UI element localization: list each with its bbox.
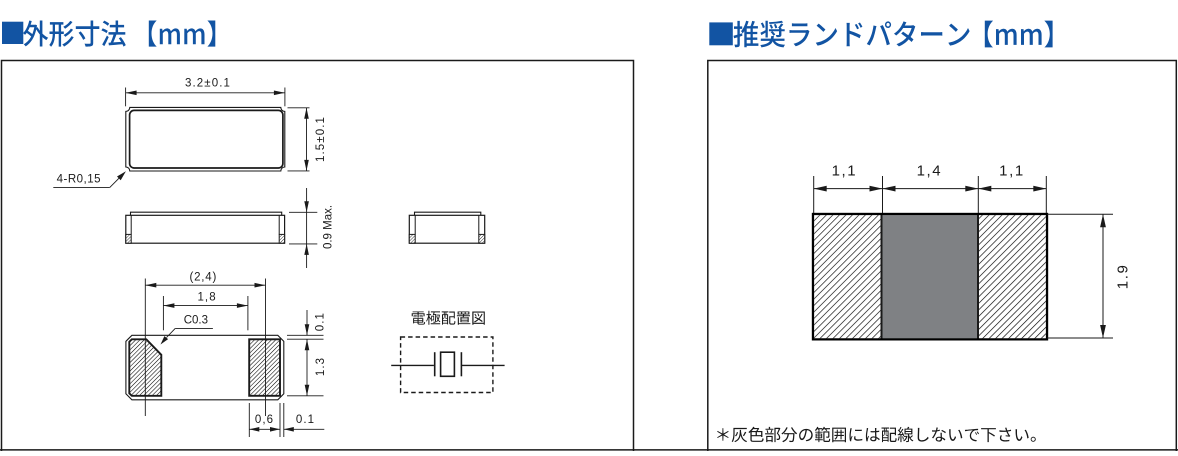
- svg-text:1,8: 1,8: [197, 291, 216, 303]
- svg-text:1.9: 1.9: [1114, 264, 1131, 290]
- svg-text:1,1: 1,1: [999, 162, 1025, 179]
- svg-text:0.1: 0.1: [315, 312, 327, 331]
- svg-text:0.1: 0.1: [296, 414, 315, 426]
- svg-text:1.3: 1.3: [315, 357, 327, 376]
- svg-text:3.2±0.1: 3.2±0.1: [185, 78, 231, 90]
- svg-text:1,1: 1,1: [832, 162, 858, 179]
- svg-text:(2,4): (2,4): [189, 271, 217, 283]
- svg-text:0.9 Max.: 0.9 Max.: [323, 205, 335, 249]
- svg-text:4-R0,15: 4-R0,15: [57, 174, 101, 186]
- svg-text:C0.3: C0.3: [184, 315, 208, 327]
- svg-text:0,6: 0,6: [255, 414, 274, 426]
- svg-text:1,4: 1,4: [917, 162, 943, 179]
- svg-text:1.5±0.1: 1.5±0.1: [315, 116, 327, 162]
